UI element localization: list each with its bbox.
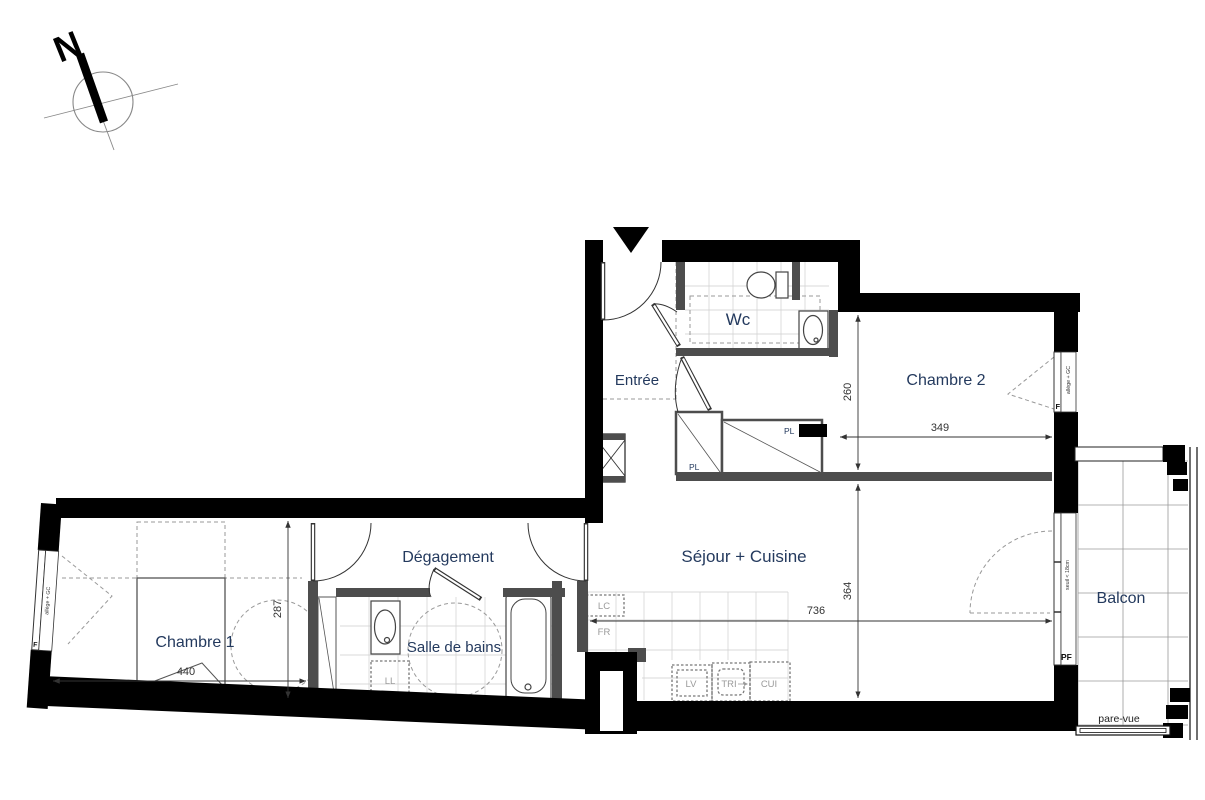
dim-349: 349	[931, 422, 949, 434]
french-window-tag: PF	[1061, 652, 1072, 662]
toilet	[747, 272, 788, 298]
room-label-sejour-cuisine: Séjour + Cuisine	[681, 547, 806, 566]
dishwasher-label: LV	[686, 679, 698, 690]
floor-plan-page: N	[0, 0, 1205, 800]
washing-column-label: LC	[598, 601, 610, 612]
dim-440: 440	[177, 666, 195, 678]
dim-287: 287	[272, 600, 284, 618]
washer-label: LL	[385, 676, 396, 687]
window-f-chambre2: allège + GC F	[1054, 352, 1076, 412]
closet-label-1: PL	[689, 462, 700, 472]
bathtub	[506, 594, 551, 702]
bathroom-sink	[371, 601, 400, 654]
balcony-top-rail	[1075, 447, 1163, 461]
threshold-note: seuil < 18cm	[1065, 559, 1071, 589]
balcony-post-2	[1167, 462, 1187, 475]
room-label-chambre1: Chambre 1	[155, 634, 234, 651]
balcony-post-4	[1170, 688, 1190, 702]
room-label-entree: Entrée	[615, 372, 659, 389]
duct-notch	[600, 671, 623, 731]
dim-260: 260	[842, 383, 854, 401]
pare-vue-label: pare-vue	[1098, 713, 1140, 725]
room-label-balcon: Balcon	[1097, 590, 1146, 607]
room-label-wc: Wc	[726, 310, 751, 329]
room-label-degagement: Dégagement	[402, 549, 494, 566]
sill-note-chambre2: allège + GC	[1066, 366, 1072, 394]
room-label-salle-de-bains: Salle de bains	[407, 639, 501, 656]
closet-pl-entrance: PL	[676, 412, 722, 474]
fridge-label: FR	[598, 627, 611, 638]
closet-label-2: PL	[784, 426, 795, 436]
french-window-pf: seuil < 18cm PF	[1054, 513, 1076, 665]
floor-plan-svg: N	[0, 0, 1205, 800]
pare-vue-screen	[1076, 726, 1170, 735]
closet-pl-corridor: PL	[722, 420, 827, 474]
cooktop-label: CUI	[761, 679, 777, 690]
balcony-post-3	[1173, 479, 1188, 491]
sorting-label: TRI	[721, 679, 736, 690]
balcony-post-5	[1166, 705, 1188, 719]
dim-364: 364	[842, 582, 854, 600]
dim-736: 736	[807, 605, 825, 617]
window-tag-chambre2: F	[1056, 402, 1061, 411]
balcony-post-1	[1163, 445, 1185, 462]
room-label-chambre2: Chambre 2	[906, 372, 985, 389]
wc-sink	[799, 311, 828, 350]
